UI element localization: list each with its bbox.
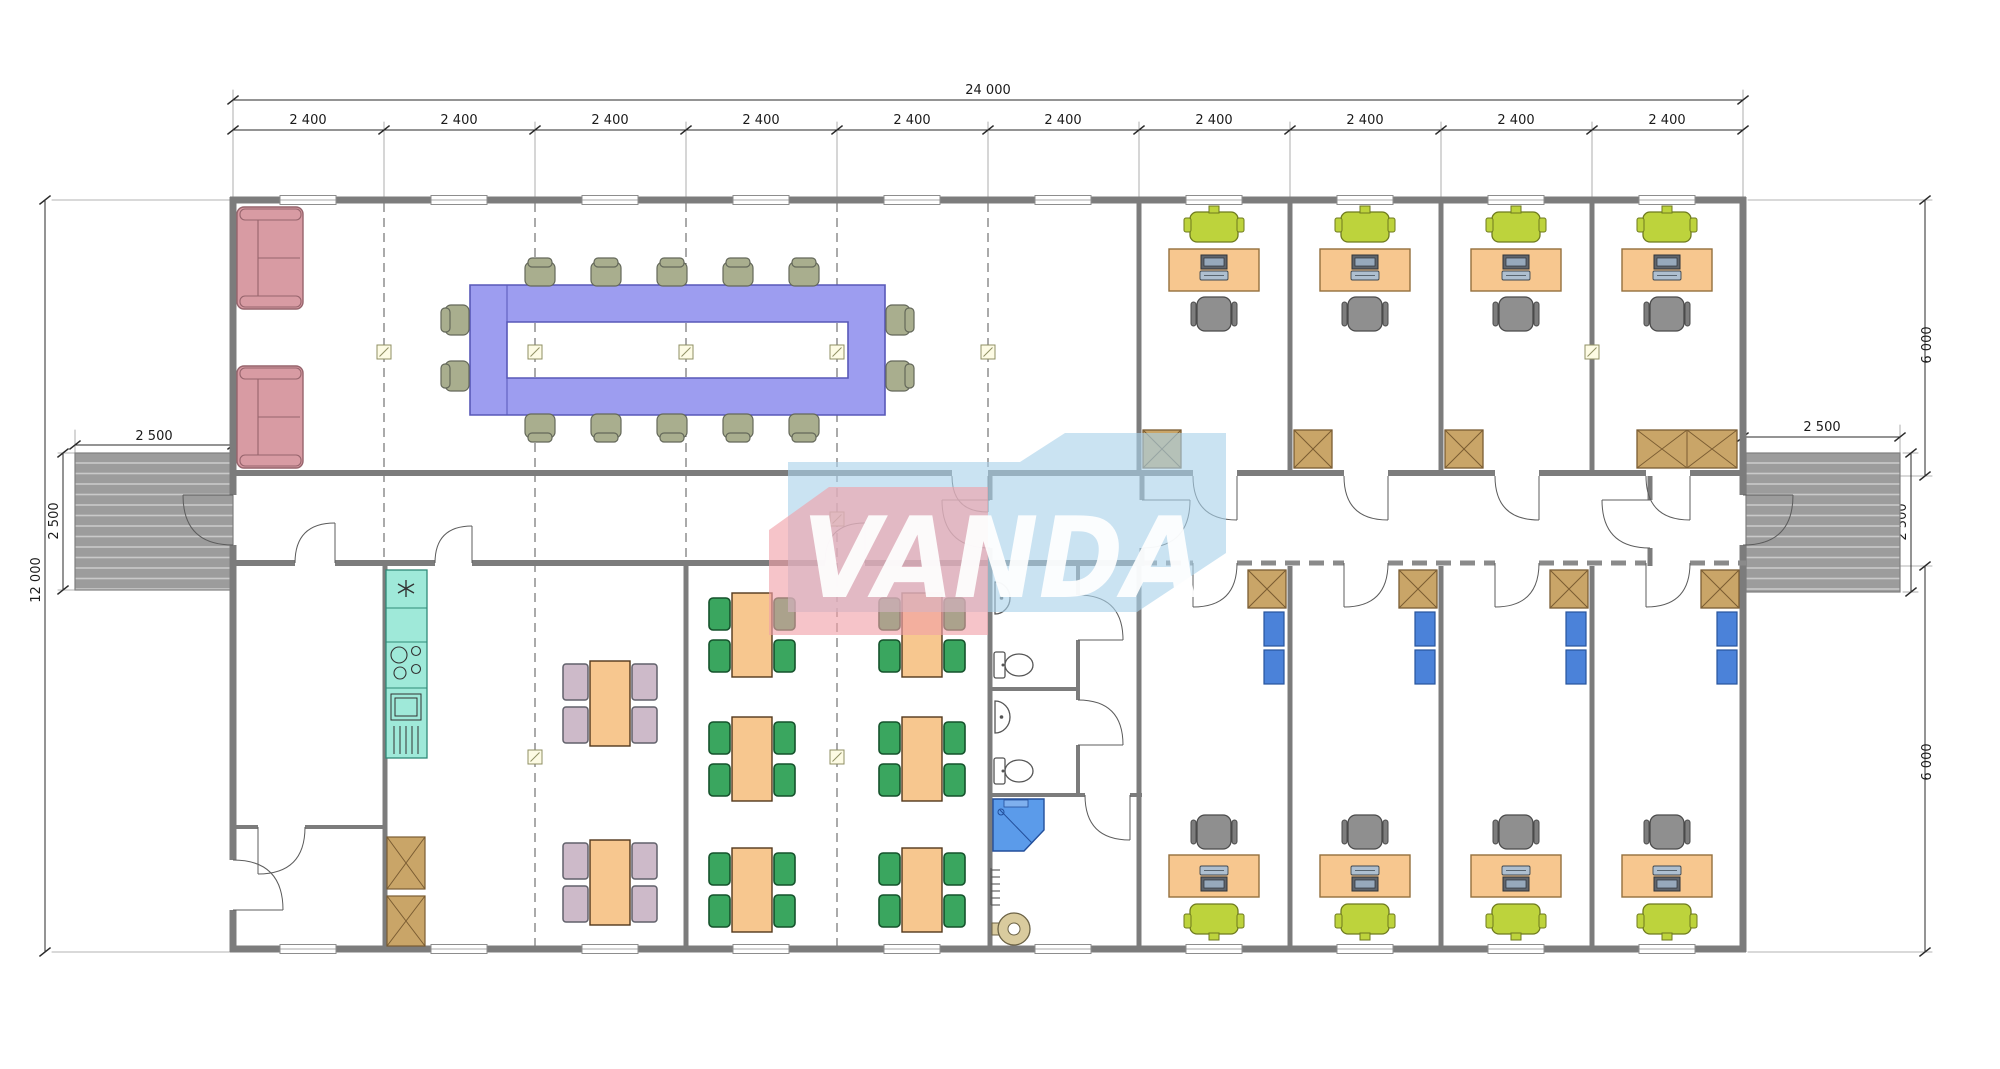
storage-cabinet [1399,570,1437,608]
dim-deck-depth-left: 2 500 [47,502,62,539]
dim-deck-width-left: 2 500 [135,429,172,444]
dining-table-green [879,848,965,932]
floor-plan-canvas: 24 000 2 400 2 400 2 400 2 400 2 400 2 4… [0,0,2000,1069]
office-workstation [1471,206,1561,331]
dim-module: 2 400 [1195,113,1232,128]
dim-module: 2 400 [1346,113,1383,128]
toilet-icon [994,652,1033,678]
toilet-icon [994,758,1033,784]
storage-cabinet-double [1637,430,1737,468]
office-workstation [1320,815,1410,940]
dim-wing-top: 6 000 [1920,326,1935,363]
storage-cabinet [1445,430,1483,468]
sofa [237,366,303,468]
dim-module: 2 400 [742,113,779,128]
storage-cabinet [387,837,425,946]
watermark-logo-text: VANDA [790,493,1213,624]
kitchen-unit [386,570,427,758]
dining-table-green [709,717,795,801]
dim-total-width: 24 000 [965,83,1011,98]
dining-table-green [879,717,965,801]
office-workstation [1320,206,1410,331]
sofa [237,207,303,309]
storage-cabinet [1550,570,1588,608]
dim-module: 2 400 [1648,113,1685,128]
storage-cabinet [1701,570,1739,608]
office-workstation [1622,815,1712,940]
office-workstation [1471,815,1561,940]
locker-shelf [1264,612,1284,646]
washbasin-icon [995,701,1010,733]
right-deck [1746,453,1900,592]
dining-table-pink [563,840,657,925]
shower-icon [993,799,1044,851]
vanda-watermark: VANDA [769,433,1226,635]
locker-shelf [1566,650,1586,684]
dim-deck-width-right: 2 500 [1803,420,1840,435]
dim-wing-bottom: 6 000 [1920,743,1935,780]
storage-cabinet [1248,570,1286,608]
dim-module: 2 400 [440,113,477,128]
office-workstation [1622,206,1712,331]
locker-shelf [1264,650,1284,684]
boiler-icon [992,913,1030,945]
locker-shelf [1717,612,1737,646]
bottom-offices [1169,570,1739,940]
office-workstation [1169,815,1259,940]
locker-shelf [1566,612,1586,646]
dim-total-depth: 12 000 [29,557,44,603]
dining-table-green [709,848,795,932]
dim-module: 2 400 [1044,113,1081,128]
dim-module: 2 400 [893,113,930,128]
locker-shelf [1415,612,1435,646]
dim-module: 2 400 [1497,113,1534,128]
locker-shelf [1415,650,1435,684]
storage-cabinet [1294,430,1332,468]
left-deck [75,453,233,590]
meeting-room [237,207,914,468]
dim-module: 2 400 [591,113,628,128]
sanitary-block [991,582,1044,945]
office-workstation [1169,206,1259,331]
floor-plan-drawing: 24 000 2 400 2 400 2 400 2 400 2 400 2 4… [0,0,2000,1069]
dining-table-pink [563,661,657,746]
locker-shelf [1717,650,1737,684]
dim-module: 2 400 [289,113,326,128]
